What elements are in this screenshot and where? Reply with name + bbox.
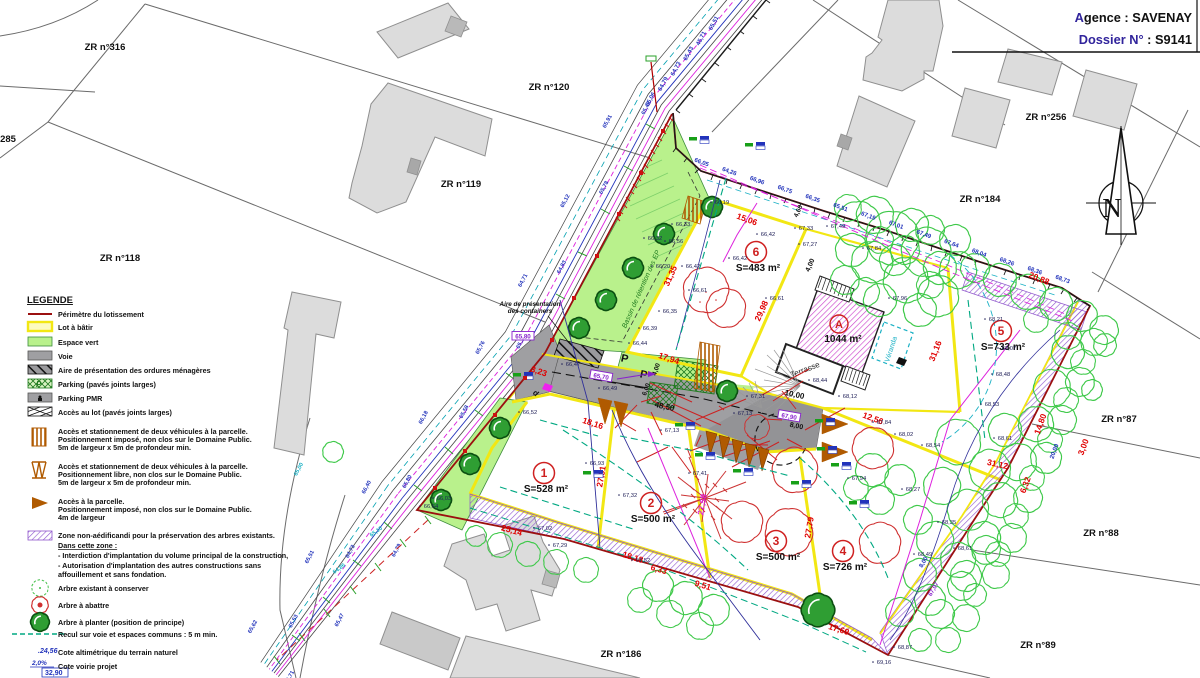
svg-text:5m de largeur x 5m de profonde: 5m de largeur x 5m de profondeur min.: [58, 443, 191, 452]
svg-text:68,54: 68,54: [926, 443, 941, 449]
svg-text:68,61: 68,61: [958, 546, 973, 552]
svg-text:- Interdiction d'implantation: - Interdiction d'implantation du volume …: [58, 551, 288, 560]
svg-text:67,13: 67,13: [738, 411, 753, 417]
svg-text:66,32: 66,32: [648, 236, 663, 242]
svg-text:6: 6: [753, 245, 760, 259]
svg-text:67,94: 67,94: [852, 476, 867, 482]
svg-text:67,02: 67,02: [538, 526, 553, 532]
svg-text:4m de largeur: 4m de largeur: [58, 513, 105, 522]
svg-text:ZR n°118: ZR n°118: [100, 253, 140, 264]
svg-text:69,16: 69,16: [877, 660, 892, 666]
svg-text:68,48: 68,48: [996, 372, 1011, 378]
svg-text:N: N: [1102, 193, 1122, 223]
svg-text:68,35: 68,35: [942, 520, 957, 526]
svg-text:32,90: 32,90: [45, 670, 63, 677]
svg-text:66,42: 66,42: [761, 232, 776, 238]
svg-text:1044 m²: 1044 m²: [824, 334, 862, 345]
svg-text:ZR n°256: ZR n°256: [1026, 112, 1067, 123]
svg-text:67,13: 67,13: [665, 428, 680, 434]
svg-text:285: 285: [0, 134, 17, 145]
svg-text:67,33: 67,33: [799, 226, 814, 232]
svg-text:S=483 m²: S=483 m²: [736, 263, 781, 274]
svg-text:affouillement et sans fondatio: affouillement et sans fondation.: [58, 570, 166, 579]
svg-text:P: P: [36, 380, 42, 389]
svg-text:67,32: 67,32: [623, 493, 638, 499]
svg-text:Zone non-aédificandi pour la p: Zone non-aédificandi pour la préservatio…: [58, 531, 275, 540]
svg-text:2: 2: [648, 496, 655, 510]
svg-text:68,53: 68,53: [985, 402, 1000, 408]
svg-text:66,93: 66,93: [590, 461, 605, 467]
svg-text:68,49: 68,49: [918, 552, 933, 558]
svg-text:66,35: 66,35: [663, 309, 678, 315]
svg-text:66,61: 66,61: [770, 296, 785, 302]
svg-text:- Autorisation d'implantation: - Autorisation d'implantation des autres…: [58, 561, 261, 570]
svg-text:68,44: 68,44: [813, 378, 828, 384]
svg-text:66,20: 66,20: [656, 264, 671, 270]
svg-text:67,49: 67,49: [831, 224, 846, 230]
svg-text:65,80: 65,80: [515, 334, 531, 341]
svg-text:ZR n°119: ZR n°119: [441, 179, 481, 190]
svg-text:ZR n°89: ZR n°89: [1020, 640, 1055, 651]
svg-text:66,33: 66,33: [676, 222, 691, 228]
svg-text:Arbre à planter (position de p: Arbre à planter (position de principe): [58, 618, 185, 627]
svg-text:Dans cette zone :: Dans cette zone :: [58, 541, 117, 550]
svg-text:66,19: 66,19: [715, 200, 730, 206]
svg-text:67,52: 67,52: [636, 558, 651, 564]
svg-text:Accès au lot (pavés joints lar: Accès au lot (pavés joints larges): [58, 408, 172, 417]
svg-text:2,0%: 2,0%: [31, 660, 47, 667]
svg-text:67,84: 67,84: [877, 420, 892, 426]
svg-text:66,42: 66,42: [733, 256, 748, 262]
svg-text:66,49: 66,49: [603, 386, 618, 392]
svg-text:LEGENDE: LEGENDE: [27, 295, 73, 306]
svg-text:S=500 m²: S=500 m²: [631, 514, 676, 525]
svg-text:ZR n°186: ZR n°186: [601, 649, 642, 660]
svg-text:ZR n°87: ZR n°87: [1101, 414, 1136, 425]
svg-text:ZR n°316: ZR n°316: [85, 42, 126, 53]
svg-text:68,87: 68,87: [898, 645, 913, 651]
svg-text:5: 5: [998, 324, 1005, 338]
svg-text:68,27: 68,27: [906, 487, 921, 493]
svg-text:ZR n°184: ZR n°184: [960, 194, 1001, 205]
svg-text:Cote altimétrique du terrain n: Cote altimétrique du terrain naturel: [58, 648, 178, 657]
svg-text:68,12: 68,12: [843, 394, 858, 400]
svg-text:S=528 m²: S=528 m²: [524, 484, 569, 495]
svg-text:Voie: Voie: [58, 352, 73, 361]
svg-text:Aire de présentation: Aire de présentation: [499, 301, 561, 308]
svg-text:1: 1: [541, 466, 548, 480]
svg-text:Arbre à abattre: Arbre à abattre: [58, 601, 109, 610]
svg-text:Périmètre du lotissement: Périmètre du lotissement: [58, 310, 144, 319]
svg-text:67,27: 67,27: [803, 242, 818, 248]
svg-text:4: 4: [840, 544, 847, 558]
svg-text:66,47: 66,47: [566, 362, 581, 368]
svg-text:Parking PMR: Parking PMR: [58, 394, 103, 403]
svg-text:66,42: 66,42: [686, 264, 701, 270]
svg-text:66,56: 66,56: [669, 239, 684, 245]
svg-text:68,07: 68,07: [1002, 346, 1017, 352]
svg-text:5m de largeur x 5m de profonde: 5m de largeur x 5m de profondeur min.: [58, 478, 191, 487]
svg-text:66,39: 66,39: [643, 326, 658, 332]
svg-text:ZR n°120: ZR n°120: [529, 82, 570, 93]
svg-text:66,52: 66,52: [523, 410, 538, 416]
svg-text:66,64: 66,64: [424, 504, 439, 510]
svg-text:67,96: 67,96: [893, 296, 908, 302]
svg-text:67,29: 67,29: [553, 543, 568, 549]
svg-text:des containers: des containers: [508, 308, 553, 315]
svg-text:Aire de présentation des ordur: Aire de présentation des ordures ménagèr…: [58, 366, 211, 375]
svg-text:Dossier N° : S9141: Dossier N° : S9141: [1079, 32, 1192, 47]
svg-text:S=726 m²: S=726 m²: [823, 562, 868, 573]
svg-text:ZR n°88: ZR n°88: [1083, 528, 1118, 539]
svg-text:68,02: 68,02: [899, 432, 914, 438]
svg-text:68,21: 68,21: [989, 317, 1004, 323]
svg-text:67,31: 67,31: [751, 394, 766, 400]
svg-text:Parking (pavés joints larges): Parking (pavés joints larges): [58, 380, 156, 389]
svg-text:68,61: 68,61: [998, 436, 1013, 442]
svg-text:Cote voirie projet: Cote voirie projet: [58, 662, 118, 671]
svg-text:Arbre existant à conserver: Arbre existant à conserver: [58, 584, 149, 593]
svg-text:Lot à bâtir: Lot à bâtir: [58, 323, 93, 332]
svg-text:66,61: 66,61: [693, 288, 708, 294]
svg-text:.24,56: .24,56: [38, 648, 58, 655]
svg-text:Espace vert: Espace vert: [58, 338, 99, 347]
svg-text:Recul sur voie et espaces comm: Recul sur voie et espaces communs : 5 m …: [58, 630, 217, 639]
svg-text:3: 3: [773, 534, 780, 548]
svg-text:Agence : SAVENAY: Agence : SAVENAY: [1075, 10, 1193, 25]
svg-text:S=500 m²: S=500 m²: [756, 552, 801, 563]
svg-text:67,84: 67,84: [867, 246, 882, 252]
svg-text:A: A: [835, 319, 843, 331]
svg-text:66,03: 66,03: [437, 496, 452, 502]
svg-text:66,44: 66,44: [633, 341, 648, 347]
svg-text:67,41: 67,41: [693, 471, 708, 477]
